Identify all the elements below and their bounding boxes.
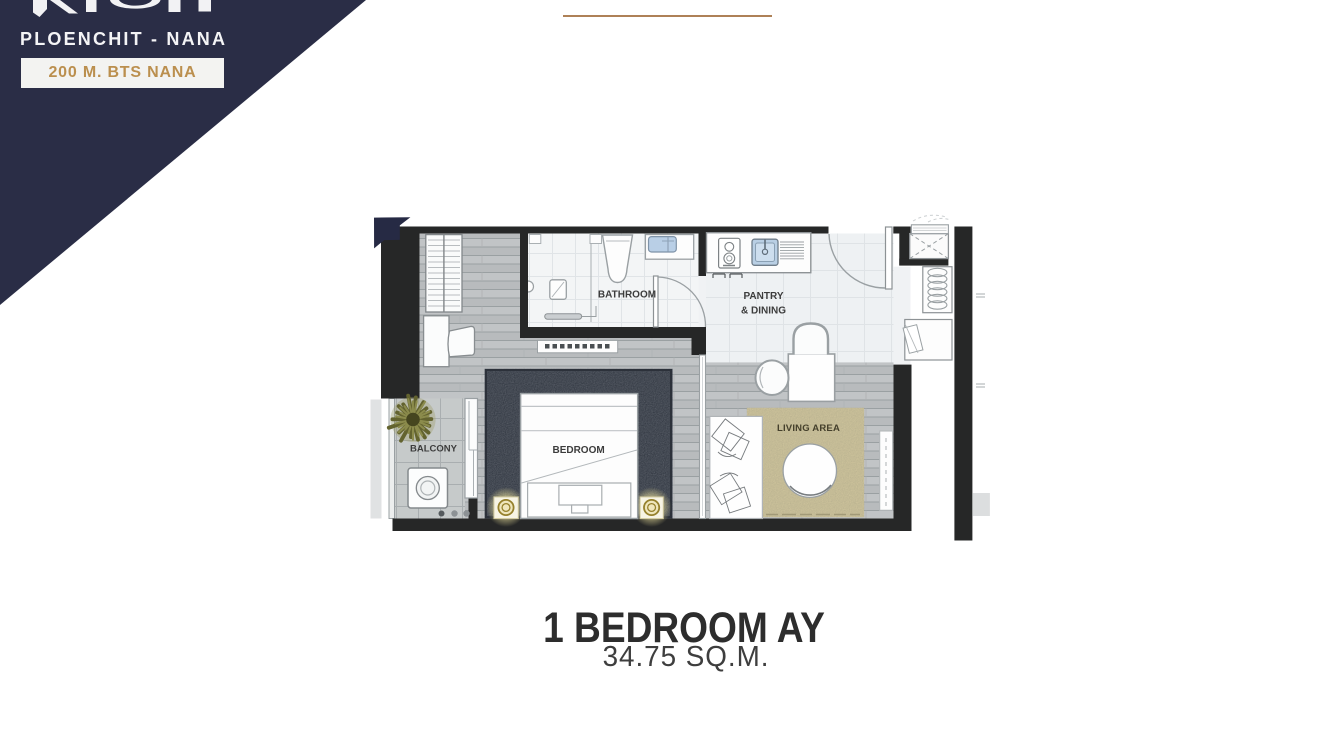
- svg-text:BALCONY: BALCONY: [410, 444, 458, 455]
- svg-text:& DINING: & DINING: [741, 306, 786, 317]
- svg-text:BATHROOM: BATHROOM: [598, 290, 656, 301]
- svg-text:LIVING AREA: LIVING AREA: [777, 423, 840, 434]
- svg-text:PANTRY: PANTRY: [744, 291, 784, 302]
- svg-text:BEDROOM: BEDROOM: [552, 445, 604, 456]
